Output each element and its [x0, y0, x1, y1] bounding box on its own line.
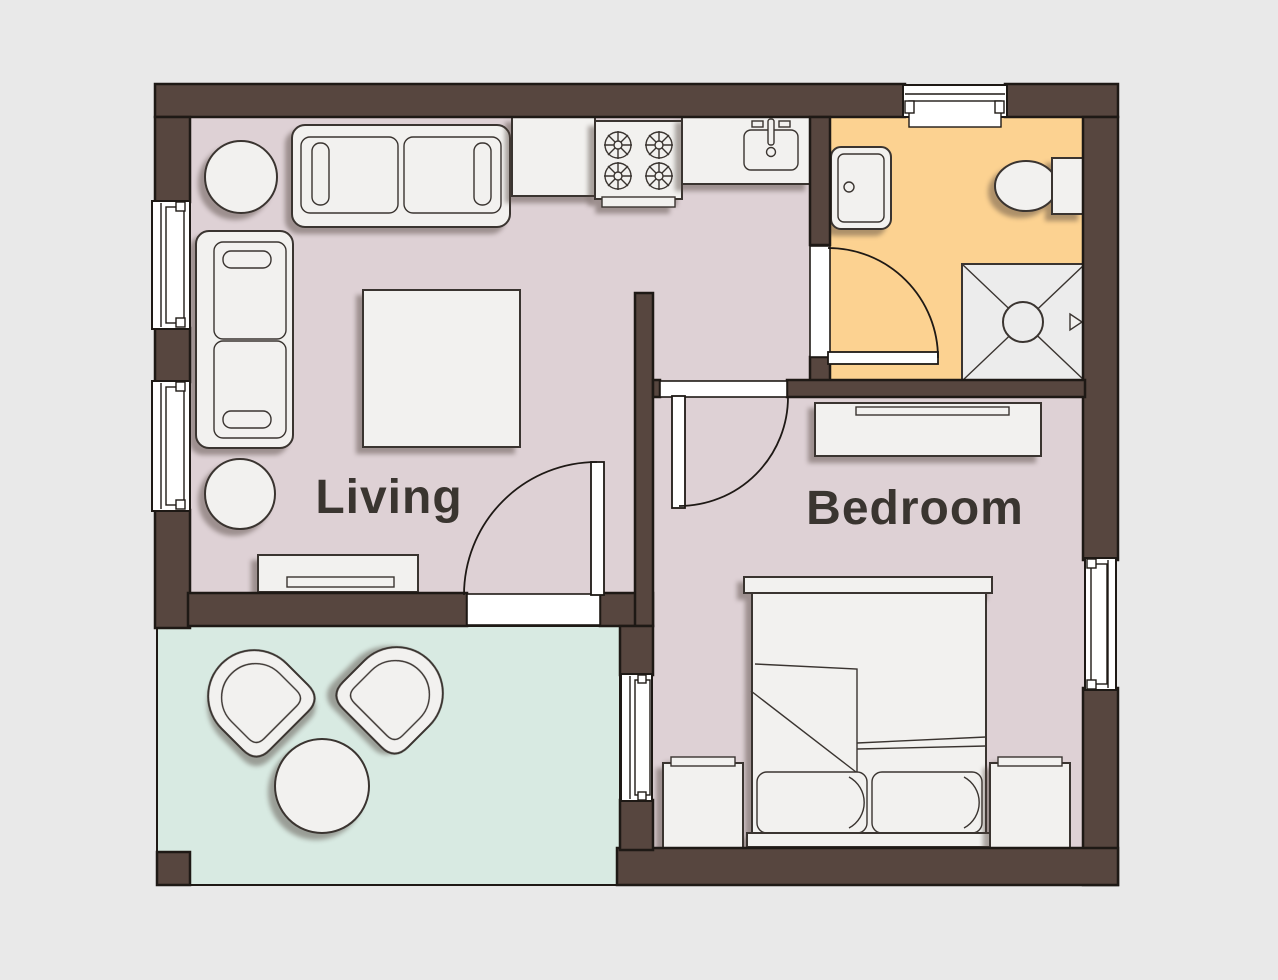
dresser-handle-icon	[856, 407, 1009, 415]
kitchen-sink-counter	[682, 117, 810, 184]
double-bed	[744, 577, 992, 847]
coffee-table	[363, 290, 520, 447]
wall-bedroom-patio-upper	[620, 626, 653, 675]
wall-bathroom-left-upper	[810, 117, 830, 245]
bed-foot-band	[744, 577, 992, 593]
bedroom-door-leaf	[672, 396, 685, 508]
patio-corner-post	[157, 852, 190, 885]
burner-icon	[645, 131, 673, 159]
window-bathroom-top	[903, 85, 1007, 127]
bathroom-door-opening	[810, 246, 830, 357]
floor-plan-drawing: Living Bedroom	[0, 0, 1278, 980]
window-living-left-lower	[152, 381, 190, 511]
wall-bottom	[617, 848, 1118, 885]
round-side-table-upper	[205, 141, 277, 213]
bedroom-label: Bedroom	[806, 482, 1024, 535]
pillow-right	[872, 772, 982, 833]
living-room-label: Living	[315, 471, 462, 524]
wall-left-middle	[155, 328, 190, 382]
floor-plan: Living Bedroom	[0, 0, 1278, 980]
wall-top-right-segment	[1005, 84, 1118, 117]
nightstand-right	[990, 757, 1070, 851]
bathroom-door-leaf	[828, 352, 938, 364]
burner-icon	[604, 162, 632, 190]
window-living-left-upper	[152, 201, 190, 329]
wall-bedroom-top-jamb	[653, 380, 660, 397]
three-seat-sofa	[292, 125, 510, 227]
living-patio-door-opening	[467, 594, 600, 625]
wall-top-left-segment	[155, 84, 905, 117]
bathroom-sink	[831, 147, 891, 229]
wall-left-upper	[155, 117, 190, 202]
toilet-tank-icon	[1052, 158, 1083, 214]
wall-bedroom-top	[787, 380, 1085, 397]
shower-drain-icon	[1003, 302, 1043, 342]
burner-icon	[604, 131, 632, 159]
toilet-bowl-icon	[995, 161, 1057, 211]
wall-living-bottom-left	[188, 593, 467, 626]
wall-bathroom-left-lower	[810, 357, 830, 382]
wall-bedroom-patio-lower	[620, 800, 653, 850]
window-bedroom-patio-side	[621, 674, 652, 801]
two-seat-sofa	[196, 231, 293, 448]
nightstand-left	[663, 757, 743, 851]
kitchen-counter	[512, 117, 595, 196]
bed-headboard	[747, 833, 990, 847]
bedroom-door-opening	[660, 381, 787, 397]
pillow-left	[757, 772, 867, 833]
wall-living-bedroom-partition	[635, 293, 653, 626]
stove-four-burners	[595, 121, 682, 207]
wall-left-lower	[155, 510, 190, 628]
patio-round-table	[275, 739, 369, 833]
round-side-table-lower	[205, 459, 275, 529]
burner-icon	[645, 162, 673, 190]
dresser	[815, 403, 1041, 456]
tv-console	[258, 555, 418, 592]
wall-right-upper	[1083, 117, 1118, 560]
window-bedroom-right	[1085, 558, 1116, 690]
toilet	[995, 158, 1083, 214]
living-patio-door-leaf	[591, 462, 604, 595]
shower	[962, 264, 1085, 381]
